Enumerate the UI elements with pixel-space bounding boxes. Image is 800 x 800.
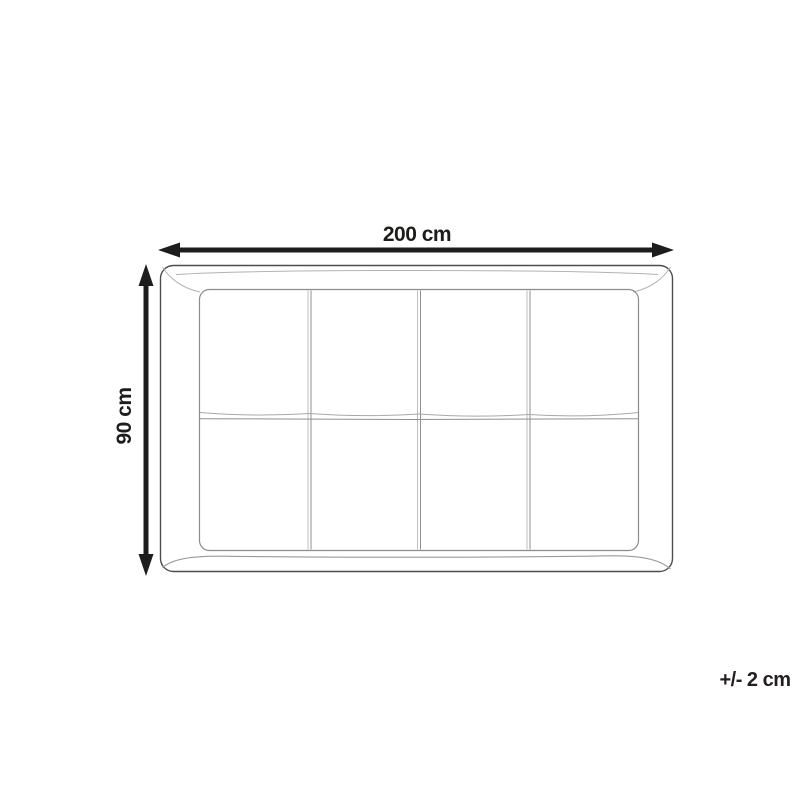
width-dimension: 200 cm bbox=[158, 223, 674, 258]
height-dimension: 90 cm bbox=[113, 264, 154, 576]
width-arrow-head-left bbox=[158, 243, 180, 258]
dimension-diagram: 200 cm 90 cm +/- 2 cm bbox=[0, 0, 800, 800]
width-dimension-label: 200 cm bbox=[383, 223, 451, 246]
diagram-page: 200 cm 90 cm +/- 2 cm bbox=[0, 0, 800, 800]
tolerance-label: +/- 2 cm bbox=[719, 669, 790, 691]
height-arrow-head-bottom bbox=[139, 554, 154, 576]
height-dimension-label: 90 cm bbox=[113, 387, 136, 444]
headboard-drawing bbox=[161, 266, 673, 572]
width-arrow-head-right bbox=[652, 243, 674, 258]
height-arrow-head-top bbox=[139, 264, 154, 286]
